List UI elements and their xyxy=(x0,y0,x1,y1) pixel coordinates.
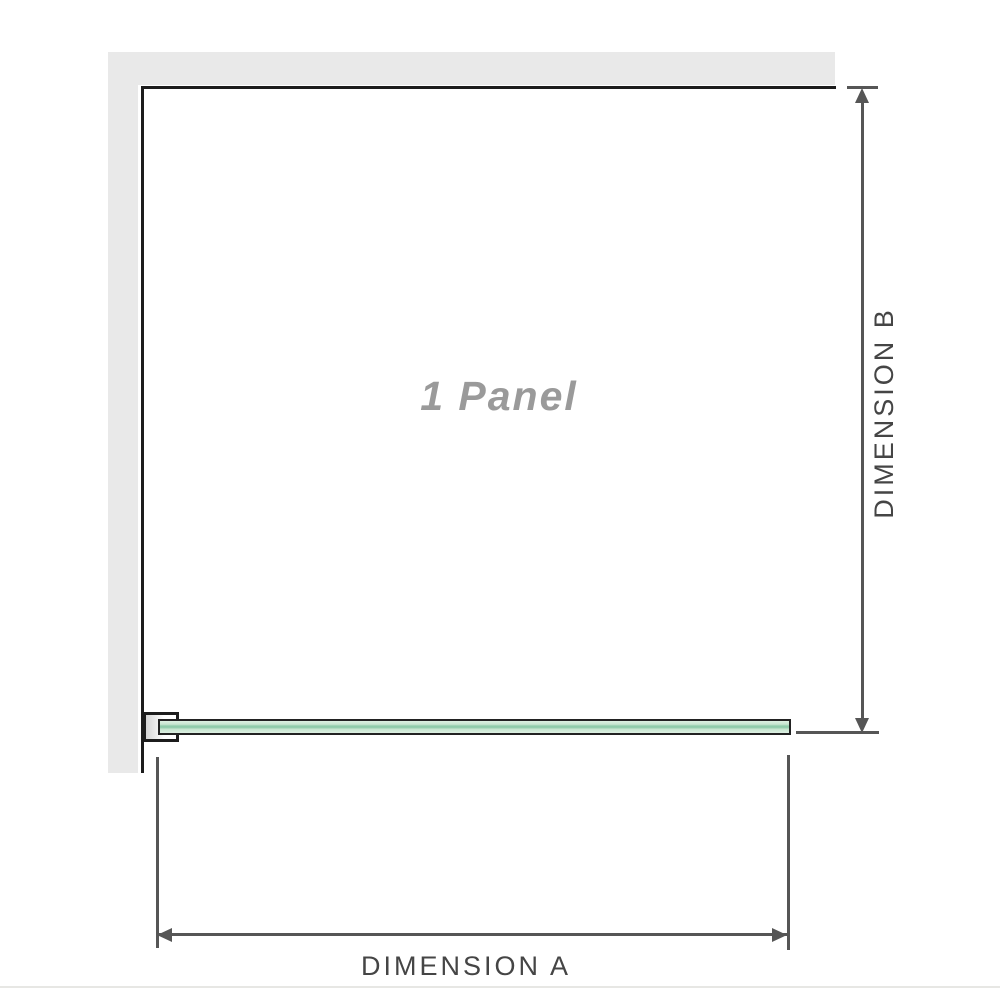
wall-left-edge-line xyxy=(141,86,144,773)
panel-dimension-diagram: 1 Panel DIMENSION B DIMENSION A xyxy=(0,0,1000,1000)
wall-left-band xyxy=(108,52,138,773)
dimension-b-arrow-down-icon xyxy=(855,718,869,733)
dimension-a-line xyxy=(159,933,787,936)
dimension-a-arrow-right-icon xyxy=(772,928,787,942)
dimension-b-arrow-up-icon xyxy=(855,88,869,103)
dimension-b-line xyxy=(861,92,864,724)
panel-count-label: 1 Panel xyxy=(349,371,649,421)
dimension-a-arrow-left-icon xyxy=(157,928,172,942)
dimension-a-left-tick xyxy=(156,757,159,948)
wall-top-edge-line xyxy=(141,86,836,89)
dimension-b-label: DIMENSION B xyxy=(869,293,899,533)
page-bottom-edge xyxy=(0,986,1000,988)
dimension-a-right-tick xyxy=(787,755,790,950)
wall-top-band xyxy=(108,52,835,85)
glass-panel-bar xyxy=(158,719,791,735)
dimension-a-label: DIMENSION A xyxy=(316,951,616,981)
